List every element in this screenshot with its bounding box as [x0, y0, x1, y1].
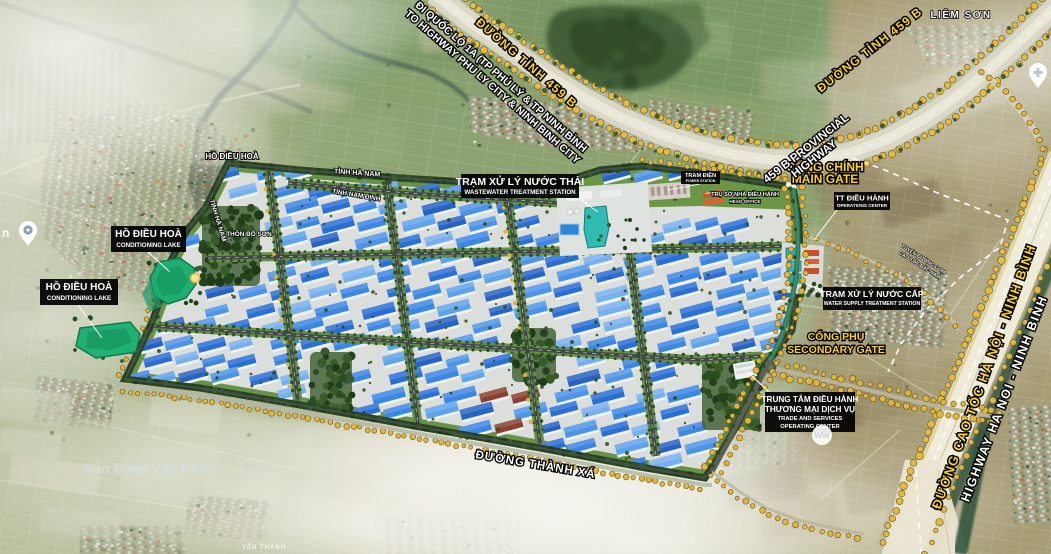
- svg-text:TRẠM XỬ LÝ NƯỚC THẢI: TRẠM XỬ LÝ NƯỚC THẢI: [456, 175, 585, 188]
- svg-text:OPERATIONS CENTER: OPERATIONS CENTER: [837, 203, 888, 208]
- svg-text:CONDITIONING LAKE: CONDITIONING LAKE: [47, 295, 111, 302]
- svg-text:ĐƯỜNG TỈNH 459 B: ĐƯỜNG TỈNH 459 B: [814, 4, 925, 96]
- svg-text:TRADE AND SERVICES: TRADE AND SERVICES: [778, 416, 843, 422]
- svg-text:TỈNH NAM ĐỊNH: TỈNH NAM ĐỊNH: [332, 186, 382, 203]
- svg-text:TRỤ SỞ NHÀ ĐIỀU HÀNH: TRỤ SỞ NHÀ ĐIỀU HÀNH: [711, 191, 779, 198]
- svg-text:TỈNH HÀ NAM: TỈNH HÀ NAM: [334, 166, 381, 178]
- svg-text:TRUNG TÂM ĐIỀU HÀNH: TRUNG TÂM ĐIỀU HÀNH: [762, 393, 859, 404]
- svg-text:n: n: [2, 226, 9, 240]
- svg-text:CONDITIONING LAKE: CONDITIONING LAKE: [116, 242, 180, 249]
- svg-text:WASTEWATER TREATMENT STATION: WASTEWATER TREATMENT STATION: [464, 189, 576, 196]
- svg-text:TRAM ĐIỆN: TRAM ĐIỆN: [685, 171, 716, 179]
- svg-text:YÊN THÀNH: YÊN THÀNH: [242, 543, 286, 551]
- svg-text:ĐI QUỐC LỘ 1A (TP PHỦ LÝ & TP: ĐI QUỐC LỘ 1A (TP PHỦ LÝ & TP NINH BÌNH: [413, 0, 591, 155]
- svg-text:HEAD OFFICE: HEAD OFFICE: [729, 199, 760, 204]
- svg-text:ĐƯỜNG THÀNH XÁ: ĐƯỜNG THÀNH XÁ: [475, 448, 597, 481]
- svg-text:OPERATING CENTER: OPERATING CENTER: [780, 424, 840, 430]
- svg-text:Sân bóng Văn Phúc: Sân bóng Văn Phúc: [84, 460, 216, 476]
- svg-text:SECONDARY GATE: SECONDARY GATE: [787, 344, 885, 356]
- svg-text:CỔNG PHỤ: CỔNG PHỤ: [808, 330, 865, 343]
- svg-text:POWER STATION: POWER STATION: [686, 179, 716, 183]
- svg-text:HỒ ĐIỀU HOÀ: HỒ ĐIỀU HOÀ: [115, 227, 182, 240]
- svg-text:WATER SUPPLY TREATMENT STATION: WATER SUPPLY TREATMENT STATION: [824, 301, 921, 307]
- svg-text:HỒ ĐIỀU HOÀ: HỒ ĐIỀU HOÀ: [46, 280, 113, 293]
- svg-text:THÔN BỔ SƠN: THÔN BỔ SƠN: [226, 229, 272, 238]
- svg-text:THƯƠNG MẠI DỊCH VỤ: THƯƠNG MẠI DỊCH VỤ: [765, 405, 855, 414]
- svg-text:WW: WW: [814, 431, 830, 440]
- svg-text:HỒ ĐIỀU HOÀ: HỒ ĐIỀU HOÀ: [205, 151, 259, 161]
- svg-text:TT ĐIỀU HÀNH: TT ĐIỀU HÀNH: [835, 193, 889, 203]
- svg-text:TRẠM XỬ LÝ NƯỚC CẤP: TRẠM XỬ LÝ NƯỚC CẤP: [820, 288, 923, 299]
- svg-text:LIÊM SƠN: LIÊM SƠN: [930, 8, 991, 21]
